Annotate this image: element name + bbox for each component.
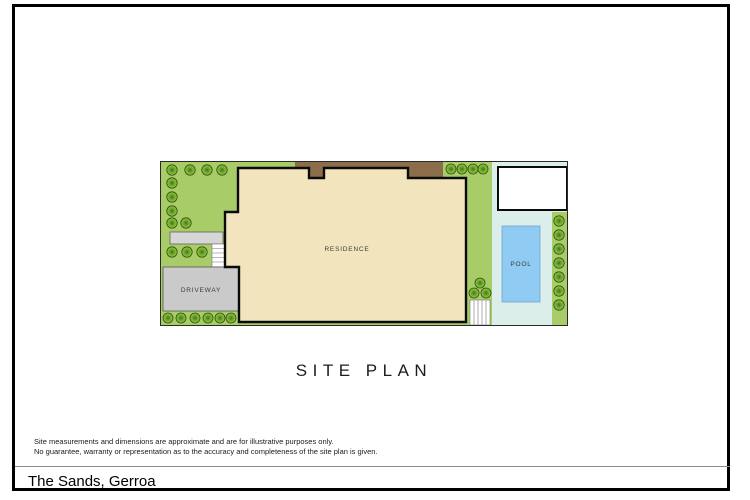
tree-icon — [167, 206, 177, 216]
tree-icon — [176, 313, 186, 323]
plan-title: SITE PLAN — [160, 361, 568, 381]
residence-building — [225, 168, 466, 322]
path — [170, 232, 223, 244]
tree-icon — [554, 244, 564, 254]
tree-icon — [469, 288, 479, 298]
tree-icon — [554, 216, 564, 226]
tree-icon — [475, 278, 485, 288]
tree-icon — [163, 313, 173, 323]
tree-icon — [181, 218, 191, 228]
pool-house — [498, 167, 567, 210]
site-plan-drawing: RESIDENCE DRIVEWAY POOL — [160, 161, 568, 326]
tree-icon — [190, 313, 200, 323]
disclaimer: Site measurements and dimensions are app… — [34, 437, 378, 456]
tree-icon — [446, 164, 456, 174]
tree-icon — [554, 230, 564, 240]
tree-icon — [215, 313, 225, 323]
driveway-label: DRIVEWAY — [181, 287, 221, 294]
tree-icon — [478, 164, 488, 174]
property-title: The Sands, Gerroa — [28, 473, 156, 490]
tree-icon — [554, 272, 564, 282]
disclaimer-line-2: No guarantee, warranty or representation… — [34, 447, 378, 457]
tree-icon — [185, 165, 195, 175]
pool-label: POOL — [510, 261, 531, 268]
tree-icon — [554, 300, 564, 310]
tree-icon — [457, 164, 467, 174]
residence-label: RESIDENCE — [324, 246, 369, 253]
steps-left — [212, 244, 225, 267]
tree-icon — [217, 165, 227, 175]
disclaimer-line-1: Site measurements and dimensions are app… — [34, 437, 378, 447]
tree-icon — [167, 165, 177, 175]
tree-icon — [197, 247, 207, 257]
steps-right — [470, 300, 490, 325]
page: RESIDENCE DRIVEWAY POOL SITE PLAN Site m… — [0, 0, 750, 500]
tree-icon — [167, 178, 177, 188]
tree-icon — [167, 247, 177, 257]
tree-icon — [226, 313, 236, 323]
tree-icon — [481, 288, 491, 298]
tree-icon — [167, 192, 177, 202]
tree-icon — [203, 313, 213, 323]
tree-icon — [202, 165, 212, 175]
tree-icon — [468, 164, 478, 174]
footer-divider — [15, 466, 730, 467]
tree-icon — [554, 258, 564, 268]
tree-icon — [554, 286, 564, 296]
tree-icon — [182, 247, 192, 257]
site-plan-svg: RESIDENCE DRIVEWAY POOL — [160, 161, 568, 326]
tree-icon — [167, 218, 177, 228]
